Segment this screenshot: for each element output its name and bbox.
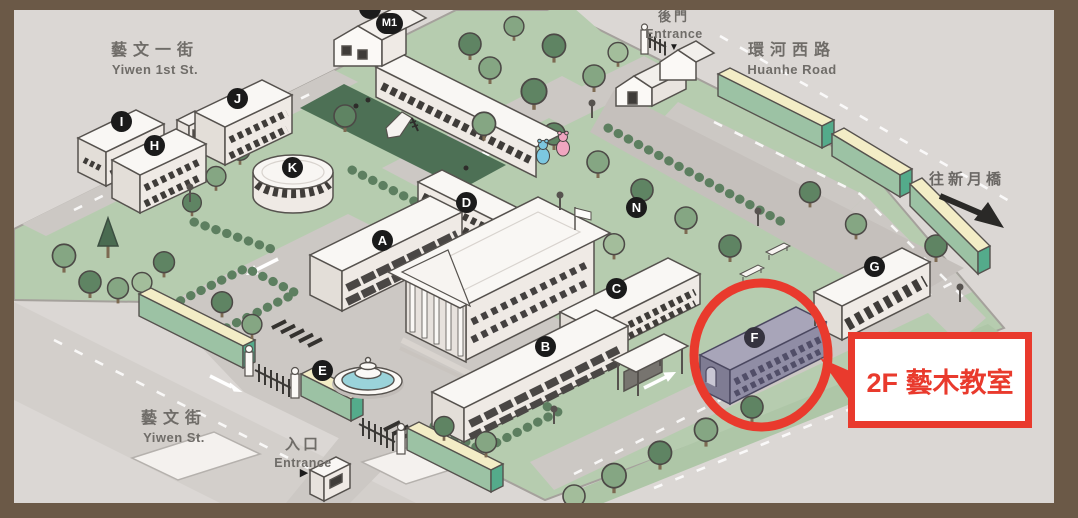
campus-map: 藝文一街 Yiwen 1st St. 環河西路 Huanhe Road 藝文街 … xyxy=(14,10,1054,503)
street-label-yiwen: 藝文街 Yiwen St. xyxy=(141,404,207,445)
building-badge-b: B xyxy=(535,336,556,357)
entrance-name-en: Entrance xyxy=(645,27,703,41)
entrance-name-zh: 後門 xyxy=(645,10,703,25)
building-badge-m1: M1 xyxy=(376,13,403,34)
building-badge-g: G xyxy=(864,256,885,277)
main-entrance-label: 入口 Entrance xyxy=(274,433,332,470)
building-badge-d: D xyxy=(456,192,477,213)
map-frame: 藝文一街 Yiwen 1st St. 環河西路 Huanhe Road 藝文街 … xyxy=(0,0,1078,518)
back-entrance-label: 後門 Entrance ▼ xyxy=(645,10,703,53)
callout-text: 2F 藝木教室 xyxy=(866,361,1013,400)
building-badge-a: A xyxy=(372,230,393,251)
street-label-yiwen-1st: 藝文一街 Yiwen 1st St. xyxy=(111,36,199,77)
street-name-zh: 藝文一街 xyxy=(111,36,199,60)
street-name-en: Huanhe Road xyxy=(747,62,836,77)
building-badge-k: K xyxy=(282,157,303,178)
building-badge-e: E xyxy=(312,360,333,381)
building-badge-c: C xyxy=(606,278,627,299)
building-badge-n: N xyxy=(626,197,647,218)
building-badge-i: I xyxy=(111,111,132,132)
entrance-name-zh: 入口 xyxy=(274,433,332,454)
building-badge-h: H xyxy=(144,135,165,156)
street-label-huanhe: 環河西路 Huanhe Road xyxy=(747,36,836,77)
callout-box: 2F 藝木教室 xyxy=(848,332,1032,428)
street-name-en: Yiwen St. xyxy=(141,430,207,445)
street-name-zh: 環河西路 xyxy=(747,36,836,60)
street-name-en: Yiwen 1st St. xyxy=(111,62,199,77)
building-badge-f: F xyxy=(744,327,765,348)
bear-statue-blue xyxy=(537,139,550,164)
street-name-zh: 藝文街 xyxy=(141,404,207,428)
bridge-label: 往新月橋 xyxy=(929,168,1005,189)
building-badge-j: J xyxy=(227,88,248,109)
bear-statue-pink xyxy=(557,131,570,156)
down-triangle-icon: ▼ xyxy=(645,42,703,53)
right-triangle-icon: ▶ xyxy=(300,466,308,479)
